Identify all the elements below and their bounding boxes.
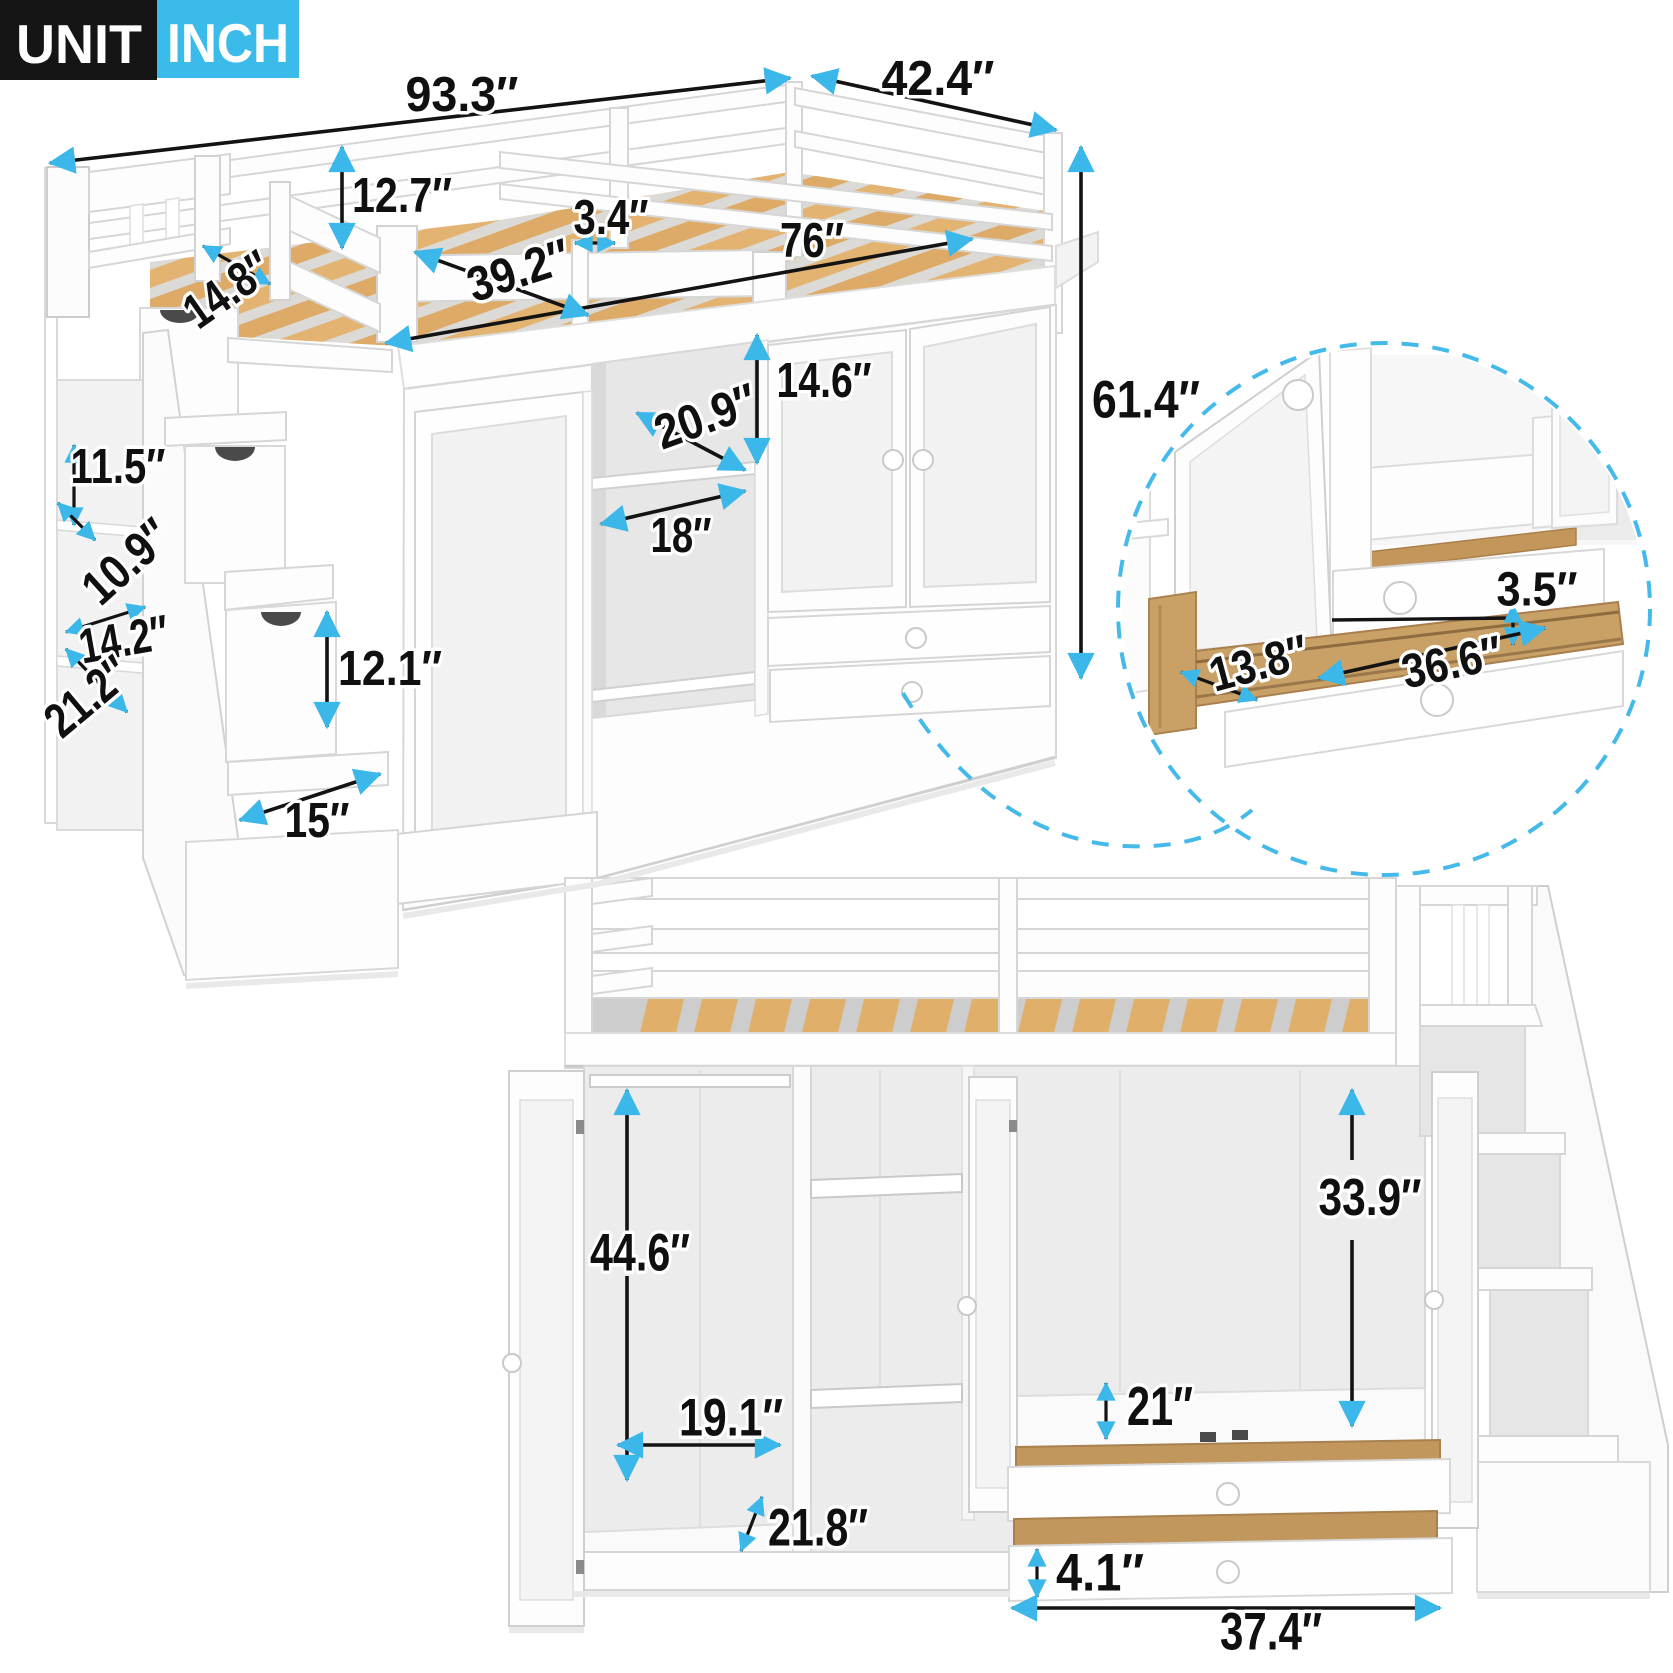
svg-text:21″: 21″ — [1127, 1375, 1193, 1437]
svg-text:3.5″: 3.5″ — [1497, 564, 1578, 617]
svg-text:76″: 76″ — [780, 214, 844, 268]
svg-text:UNIT: UNIT — [16, 13, 142, 75]
svg-text:33.9″: 33.9″ — [1319, 1169, 1422, 1227]
svg-text:21.8″: 21.8″ — [768, 1499, 868, 1558]
svg-text:18″: 18″ — [651, 509, 712, 563]
svg-text:42.4″: 42.4″ — [882, 52, 995, 106]
svg-text:INCH: INCH — [167, 12, 289, 74]
svg-text:93.3″: 93.3″ — [406, 68, 519, 122]
svg-text:37.4″: 37.4″ — [1220, 1603, 1322, 1662]
svg-text:14.6″: 14.6″ — [777, 354, 872, 408]
svg-text:44.6″: 44.6″ — [590, 1224, 690, 1283]
svg-text:12.7″: 12.7″ — [352, 169, 452, 223]
svg-text:12.1″: 12.1″ — [338, 642, 442, 696]
svg-text:3.4″: 3.4″ — [574, 191, 649, 245]
svg-text:15″: 15″ — [285, 794, 350, 848]
svg-text:19.1″: 19.1″ — [679, 1389, 783, 1448]
svg-text:11.5″: 11.5″ — [71, 440, 166, 494]
svg-text:4.1″: 4.1″ — [1056, 1544, 1144, 1603]
